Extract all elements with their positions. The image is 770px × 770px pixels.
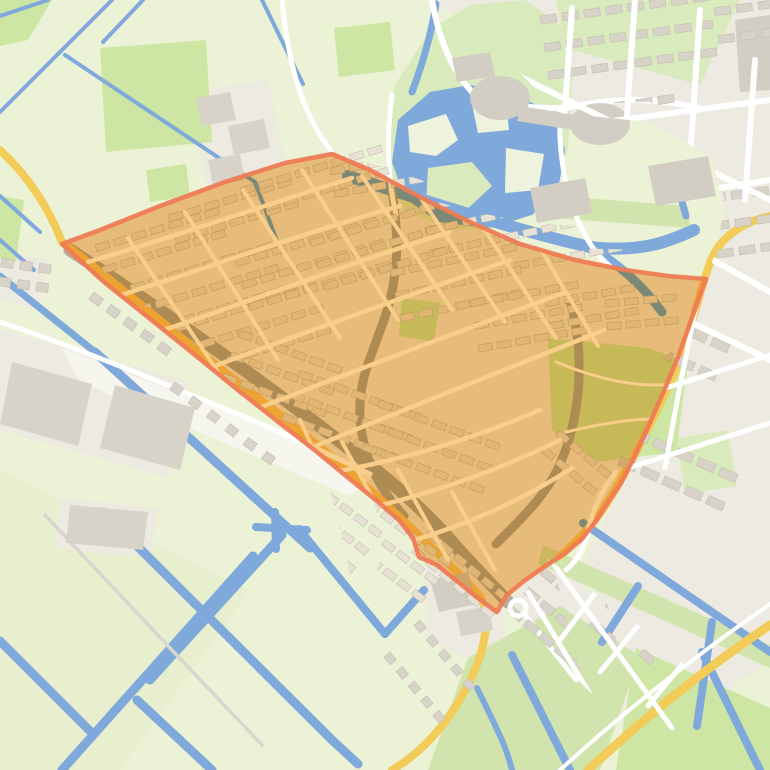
map-canvas (0, 0, 770, 770)
map-viewport[interactable] (0, 0, 770, 770)
